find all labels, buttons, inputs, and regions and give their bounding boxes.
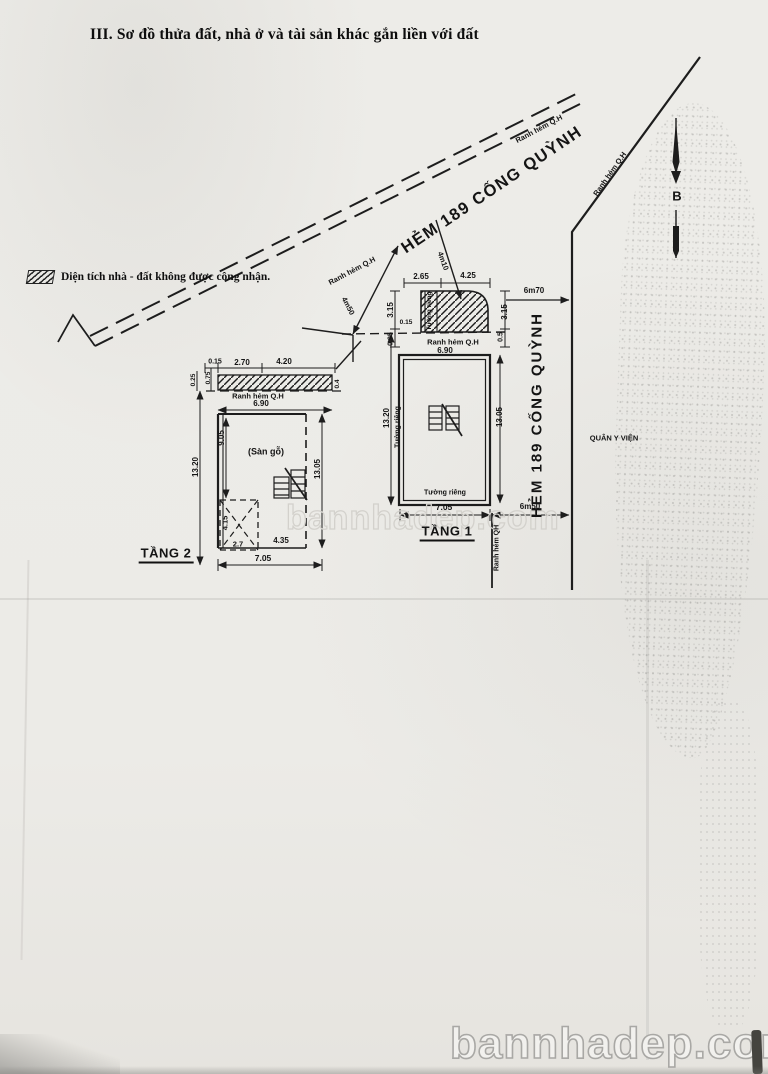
f1-wall-label-bottom: Tường riêng	[424, 490, 466, 497]
f2-dim-left-b: 0.75	[206, 372, 213, 385]
stairs-icon-floor2	[274, 468, 307, 500]
f2-void-height: 4.15	[221, 516, 229, 531]
hospital-label: QUÂN Y VIỆN	[590, 434, 639, 442]
f2-dim-seg: 4.35	[273, 537, 289, 545]
f2-dim-right-a: 0.4	[335, 379, 342, 388]
boundary-break-zigzag	[58, 315, 95, 346]
f2-dim-back: 7.05	[255, 554, 272, 563]
f1-dim-top2: 4.25	[460, 272, 476, 280]
f1-dim-left-a: 3.15	[387, 302, 395, 318]
f1-dim-offset: 0.15	[400, 320, 413, 327]
f1-dim-front: 6.90	[437, 347, 453, 355]
stairs-icon-floor1	[429, 404, 462, 436]
f2-dim-side-inner: 9.05	[218, 430, 226, 446]
hatch-swatch-icon	[26, 270, 55, 284]
street-width-6m70: 6m70	[524, 287, 544, 295]
f1-dim-side-left: 13.20	[383, 408, 391, 428]
scanned-cadastral-page: bannhadep.com bannhadep.com III. Sơ đồ t…	[0, 0, 768, 1074]
floor1-outline-inner	[404, 360, 486, 501]
f1-ranh-hem-label: Ranh hẻm Q.H	[427, 338, 479, 346]
floor1-outline-outer	[399, 355, 490, 505]
f2-dim-top0: 0.15	[208, 359, 222, 366]
f2-room-label: (Sàn gỗ)	[248, 448, 284, 457]
f1-dim-side-right: 13.05	[496, 407, 504, 427]
f2-dim-side-left: 13.20	[192, 457, 200, 477]
floor2-connector	[336, 341, 361, 369]
alley-boundary-solid	[572, 57, 700, 590]
f2-dim-side-right: 13.05	[314, 459, 322, 479]
street-name-vertical: HẺM 189 CỐNG QUỲNH	[530, 312, 545, 518]
f1-dim-right-b: 0.5	[498, 332, 505, 342]
watermark-bottom: bannhadep.com	[450, 1019, 768, 1069]
f1-wall-label-top: Tường riêng	[427, 292, 434, 331]
north-label: B	[672, 190, 681, 203]
f2-dim-top2: 4.20	[276, 358, 292, 366]
street-width-6m50: 6m50	[520, 503, 540, 511]
f1-dim-right-a: 3.15	[501, 304, 509, 320]
legend: Diện tích nhà - đất không được công nhận…	[27, 270, 270, 284]
floor2-unrecognized-hatch	[218, 375, 332, 390]
f1-ranh-hem-vertical: Ranh hẻm QH	[494, 525, 501, 571]
floor1-title: TẦNG 1	[420, 525, 475, 542]
f2-dim-top1: 2.70	[234, 359, 250, 367]
f1-dim-back: 7.05	[436, 503, 453, 512]
f1-dim-left-b: 0.95	[388, 332, 395, 346]
legend-text: Diện tích nhà - đất không được công nhận…	[61, 271, 270, 283]
f2-dim-front: 6.90	[253, 400, 269, 408]
f2-dim-left-a: 0.25	[191, 374, 198, 387]
section-title: III. Sơ đồ thửa đất, nhà ở và tài sản kh…	[90, 26, 479, 44]
f1-wall-label-left: Tường riêng	[395, 406, 402, 448]
f1-dim-top1: 2.65	[413, 273, 429, 281]
f2-void-width: 2.7	[233, 540, 243, 548]
floor2-title: TẦNG 2	[139, 547, 194, 564]
